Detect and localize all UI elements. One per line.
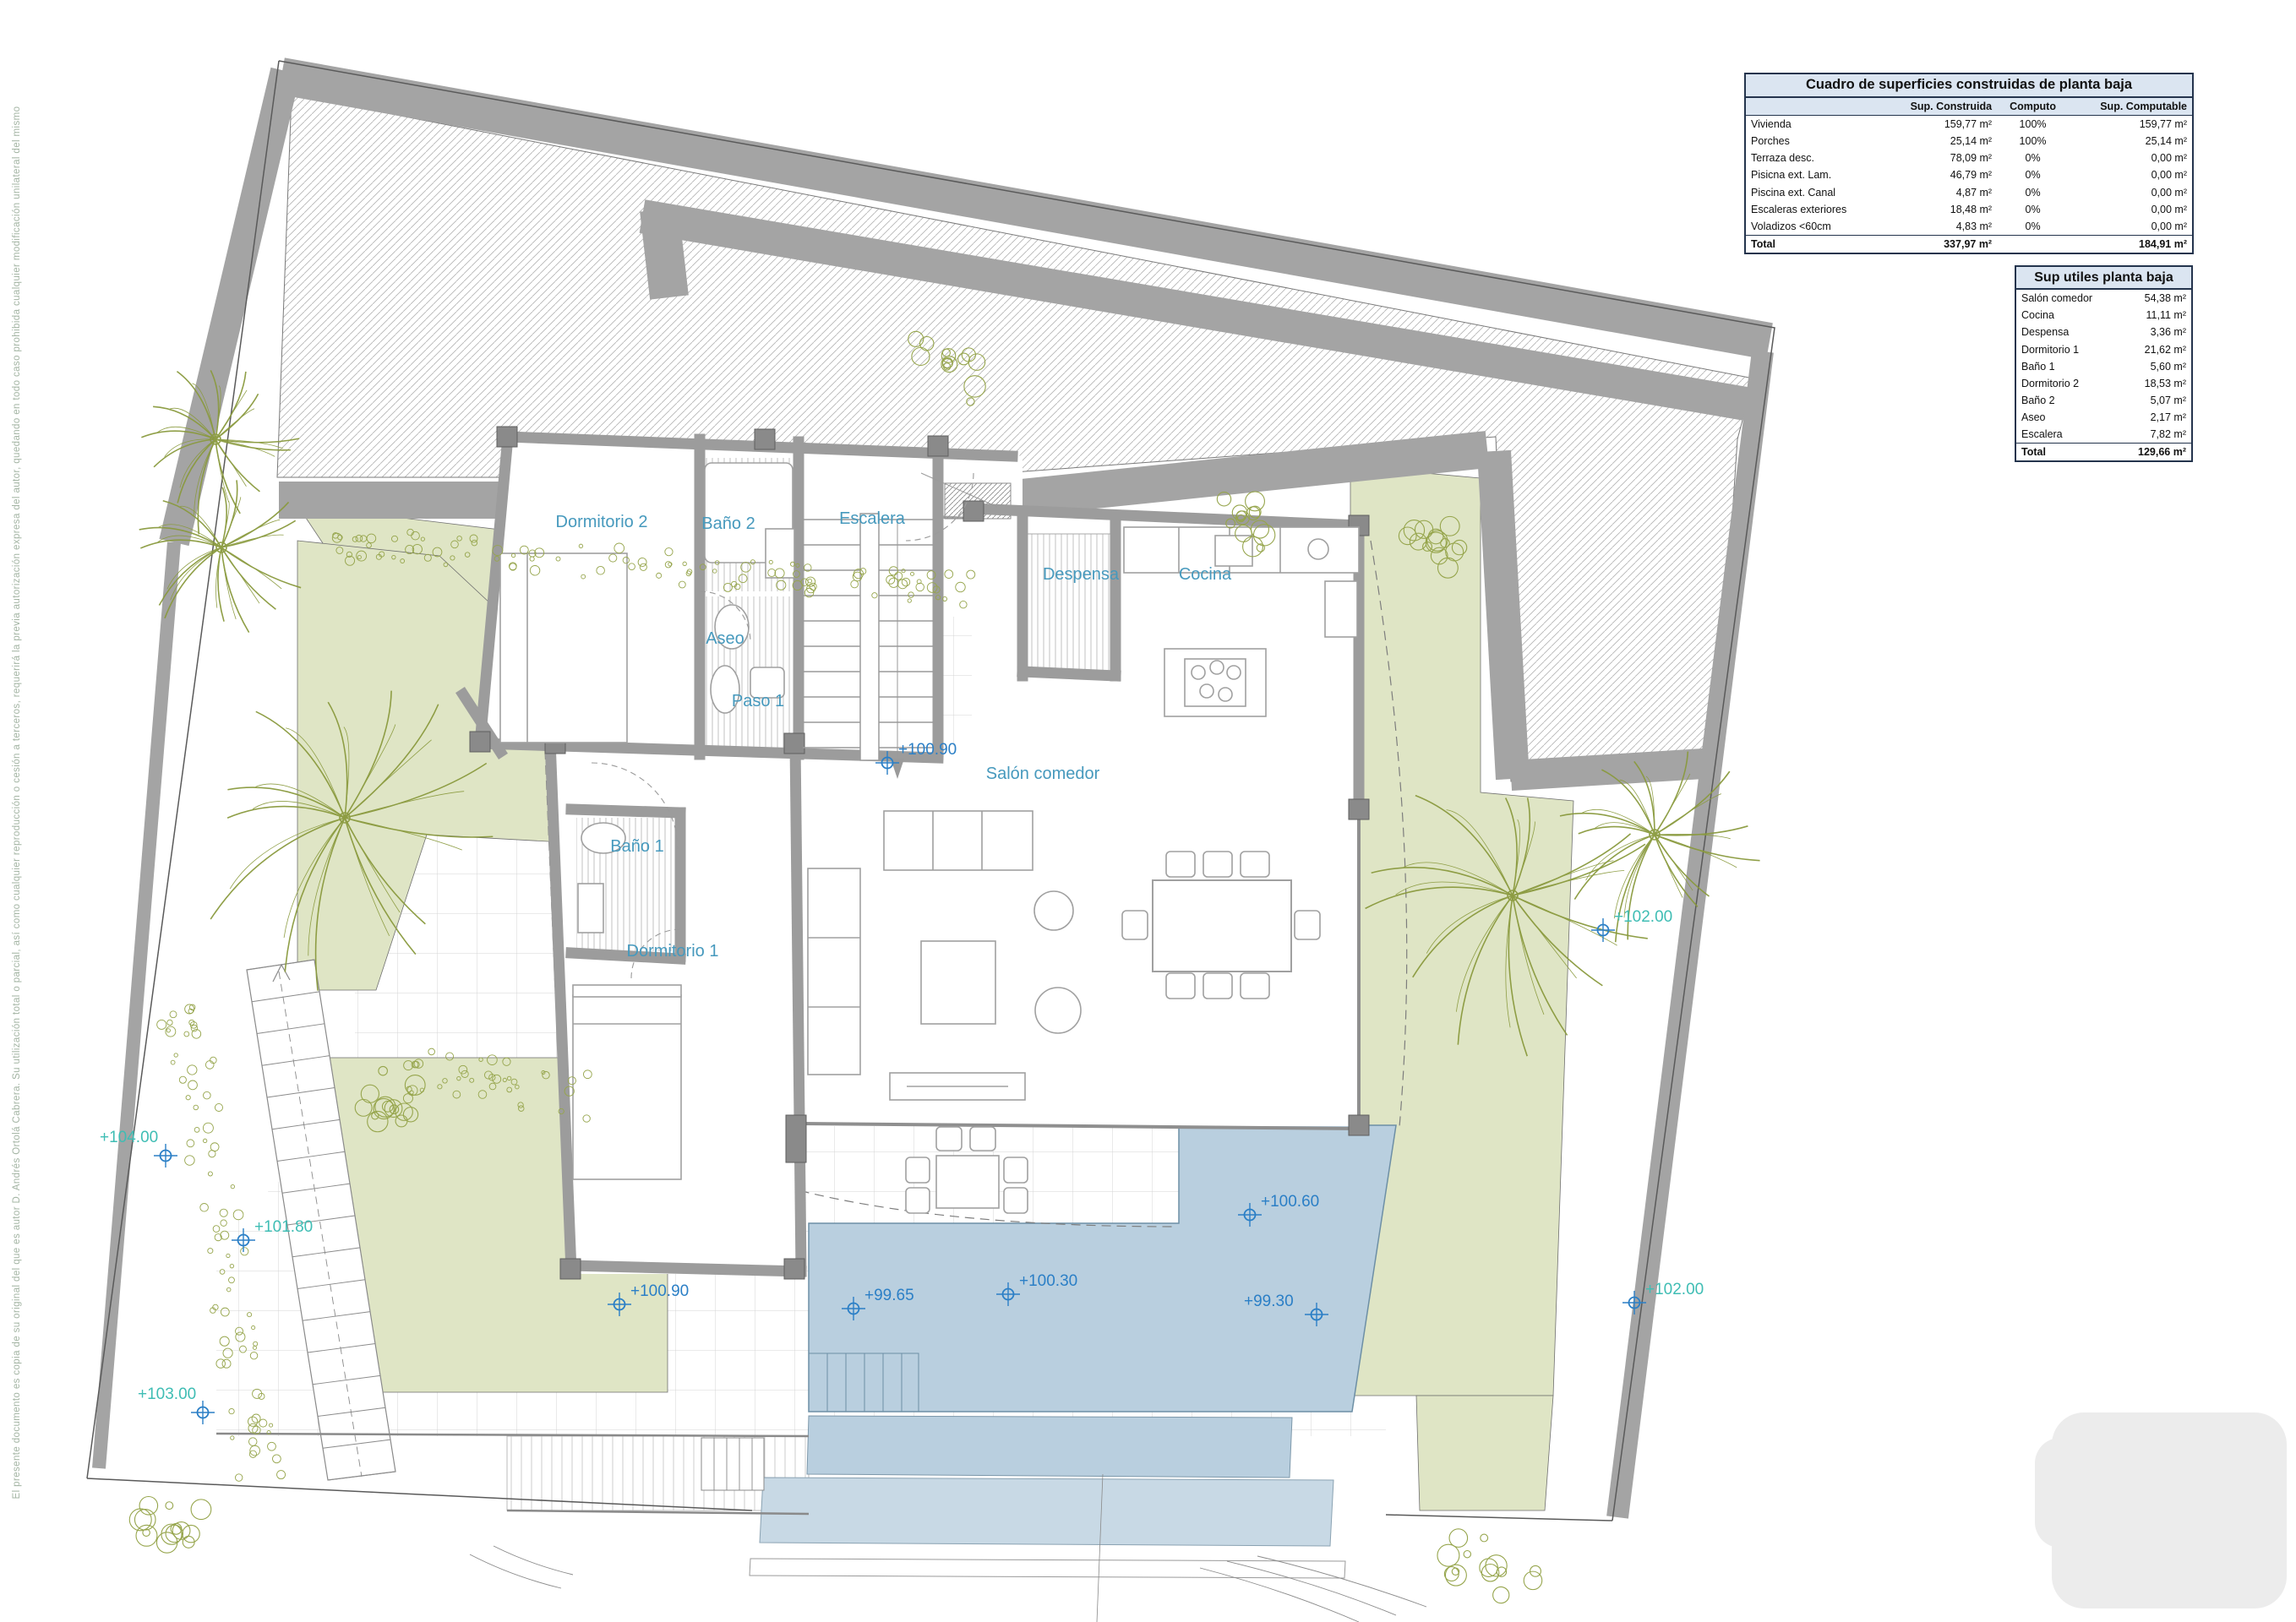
useful-areas-table: Sup utiles planta baja Salón comedor54,3… [2015,265,2193,462]
level-marker: +102.00 [1591,908,1672,942]
computable-area: 0,00 m² [2069,184,2193,201]
drawing-sheet: Dormitorio 2Baño 2EscaleraDespensaCocina… [0,0,2296,1622]
row-label: Cocina [2015,307,2118,324]
computo-pct: 0% [1997,150,2069,166]
level-label: +101.80 [254,1218,313,1236]
shrub [129,1496,211,1553]
total-computable: 184,91 m² [2069,235,2193,253]
row-label: Dormitorio 2 [2015,375,2118,392]
room-label: Despensa [1043,565,1120,584]
useful-area: 7,82 m² [2118,426,2192,444]
built-area: 46,79 m² [1880,166,1997,183]
useful-table-title: Sup utiles planta baja [2015,266,2192,289]
useful-area: 21,62 m² [2118,341,2192,358]
crosshair-icon [191,1401,215,1424]
computo-pct: 0% [1997,201,2069,218]
built-area: 78,09 m² [1880,150,1997,166]
computo-pct: 0% [1997,184,2069,201]
row-label: Salón comedor [2015,289,2118,307]
row-label: Escalera [2015,426,2118,444]
room-label: Baño 2 [701,514,755,533]
useful-area: 11,11 m² [2118,307,2192,324]
level-label: +99.30 [1244,1293,1294,1310]
row-label: Porches [1745,133,1880,150]
computo-pct: 100% [1997,133,2069,150]
total-built: 337,97 m² [1880,235,1997,253]
built-area: 4,87 m² [1880,184,1997,201]
total-pct [1997,235,2069,253]
computo-pct: 100% [1997,116,2069,133]
crosshair-icon [154,1144,177,1168]
level-label: +100.90 [898,741,957,759]
pool-canal [807,1416,1292,1478]
level-label: +102.00 [1645,1281,1704,1298]
row-label: Pisicna ext. Lam. [1745,166,1880,183]
row-label: Baño 1 [2015,358,2118,375]
level-marker: +104.00 [100,1129,177,1168]
room-label: Cocina [1179,565,1232,584]
level-marker: +102.00 [1622,1281,1704,1314]
row-label: Vivienda [1745,116,1880,133]
built-area: 18,48 m² [1880,201,1997,218]
useful-area: 5,07 m² [2118,392,2192,409]
useful-area: 2,17 m² [2118,409,2192,426]
computable-area: 0,00 m² [2069,150,2193,166]
useful-area: 54,38 m² [2118,289,2192,307]
level-label: +100.30 [1019,1272,1077,1290]
col-header-computo: Computo [1997,97,2069,116]
row-label: Terraza desc. [1745,150,1880,166]
computable-area: 25,14 m² [2069,133,2193,150]
row-label: Piscina ext. Canal [1745,184,1880,201]
crosshair-icon [1591,918,1615,942]
computable-area: 0,00 m² [2069,201,2193,218]
level-label: +103.00 [138,1385,196,1403]
constructed-areas-table: Cuadro de superficies construidas de pla… [1744,73,2194,254]
stamp-blob [2052,1412,2287,1608]
col-header-blank [1745,97,1880,116]
built-area: 4,83 m² [1880,218,1997,236]
computable-area: 0,00 m² [2069,218,2193,236]
useful-area: 5,60 m² [2118,358,2192,375]
level-marker: +103.00 [138,1385,215,1424]
room-label: Baño 1 [610,837,663,856]
room-label: Salón comedor [986,765,1100,783]
level-label: +100.90 [630,1282,689,1300]
useful-area: 3,36 m² [2118,324,2192,340]
shrub [1437,1529,1542,1603]
row-label: Voladizos <60cm [1745,218,1880,236]
level-label: +104.00 [100,1129,158,1146]
room-label: Paso 1 [732,692,784,710]
col-header-computable: Sup. Computable [2069,97,2193,116]
total-useful: 129,66 m² [2118,444,2192,462]
built-area: 159,77 m² [1880,116,1997,133]
level-label: +102.00 [1614,908,1672,926]
row-label: Dormitorio 1 [2015,341,2118,358]
room-label: Dormitorio 2 [556,513,648,531]
level-label: +99.65 [864,1287,914,1304]
total-label: Total [2015,444,2118,462]
total-label: Total [1745,235,1880,253]
room-label: Aseo [706,629,744,648]
computo-pct: 0% [1997,218,2069,236]
row-label: Escaleras exteriores [1745,201,1880,218]
constructed-table-title: Cuadro de superficies construidas de pla… [1745,73,2193,97]
col-header-built: Sup. Construida [1880,97,1997,116]
row-label: Baño 2 [2015,392,2118,409]
row-label: Despensa [2015,324,2118,340]
computable-area: 0,00 m² [2069,166,2193,183]
room-label: Escalera [839,509,906,528]
level-label: +100.60 [1261,1193,1319,1211]
built-area: 25,14 m² [1880,133,1997,150]
useful-area: 18,53 m² [2118,375,2192,392]
palm-tree [141,370,299,534]
computo-pct: 0% [1997,166,2069,183]
room-label: Dormitorio 1 [627,942,719,961]
computable-area: 159,77 m² [2069,116,2193,133]
row-label: Aseo [2015,409,2118,426]
copyright-notice: El presente documento es copia de su ori… [12,76,22,1529]
pool-lower-deck [760,1478,1333,1546]
